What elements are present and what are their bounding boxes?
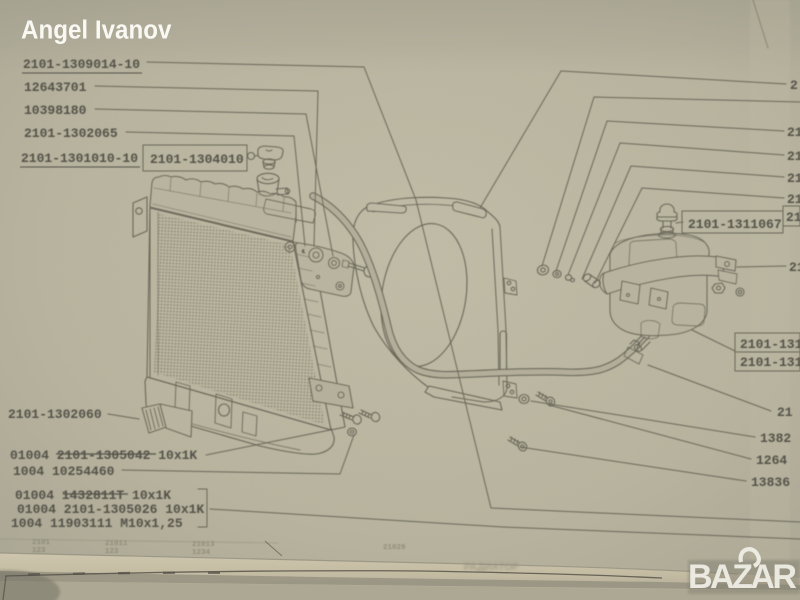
svg-text:01004 2101-1305042 10x1K: 01004 2101-1305042 10x1K xyxy=(10,448,197,463)
svg-text:21: 21 xyxy=(787,149,800,164)
svg-text:13836: 13836 xyxy=(751,475,790,490)
svg-text:2101-1309014-10: 2101-1309014-10 xyxy=(23,57,140,72)
svg-text:10398180: 10398180 xyxy=(24,103,87,118)
svg-text:2101-1302060: 2101-1302060 xyxy=(8,407,102,422)
svg-text:01004 1432811T 10x1K: 01004 1432811T 10x1K xyxy=(15,488,171,503)
svg-text:2101-131: 2101-131 xyxy=(740,337,800,352)
svg-text:1234: 1234 xyxy=(192,549,211,557)
svg-text:2: 2 xyxy=(790,78,798,93)
svg-text:21: 21 xyxy=(777,405,793,420)
svg-text:21: 21 xyxy=(787,192,800,207)
svg-text:1264: 1264 xyxy=(756,453,787,468)
svg-text:21: 21 xyxy=(789,260,800,275)
svg-text:21: 21 xyxy=(787,125,800,140)
svg-text:01004 2101-1305026 10x1K: 01004 2101-1305026 10x1K xyxy=(17,502,204,517)
svg-text:1004 11903111 M10x1,25: 1004 11903111 M10x1,25 xyxy=(11,516,183,531)
svg-text:2101-1302065: 2101-1302065 xyxy=(24,126,118,141)
svg-text:21: 21 xyxy=(787,171,800,186)
svg-text:21029: 21029 xyxy=(383,544,406,552)
svg-text:123: 123 xyxy=(32,547,46,555)
svg-text:2101-1301010-10: 2101-1301010-10 xyxy=(21,151,138,166)
svg-text:21011: 21011 xyxy=(105,540,128,548)
svg-text:1004 10254460: 1004 10254460 xyxy=(13,464,115,479)
svg-text:2101-131: 2101-131 xyxy=(740,355,800,370)
svg-text:2101-1304010: 2101-1304010 xyxy=(150,152,244,167)
svg-text:123: 123 xyxy=(105,548,119,556)
svg-text:12643701: 12643701 xyxy=(24,80,87,95)
svg-text:1382: 1382 xyxy=(760,431,791,446)
svg-text:2101-1311067: 2101-1311067 xyxy=(688,217,782,232)
svg-text:Angel Ivanov: Angel Ivanov xyxy=(21,16,171,45)
svg-text:21: 21 xyxy=(786,210,800,225)
svg-text:2101: 2101 xyxy=(32,539,51,547)
svg-text:BAZAR: BAZAR xyxy=(688,558,796,596)
